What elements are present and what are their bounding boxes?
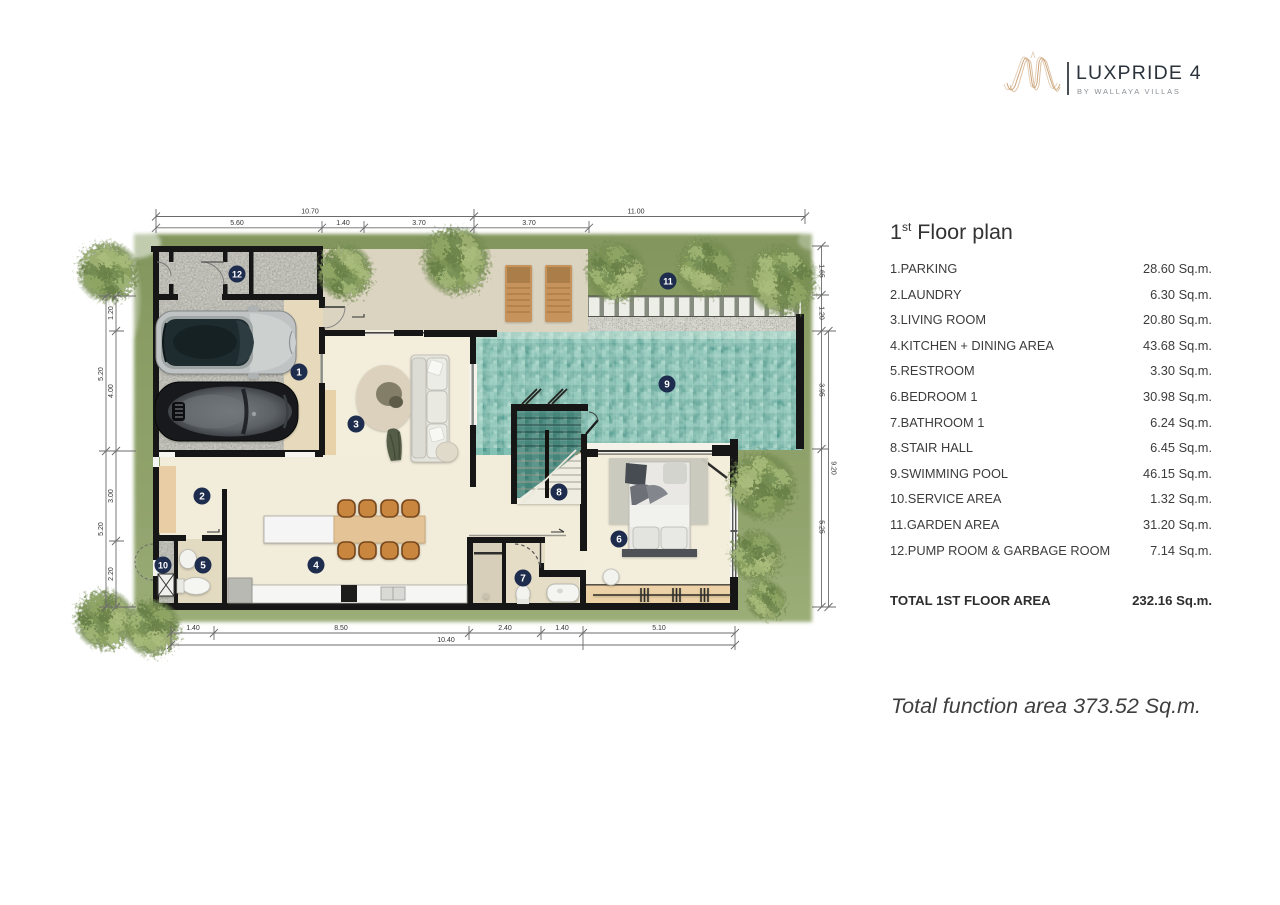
svg-text:2.20: 2.20 [108,567,115,581]
svg-text:3.95: 3.95 [818,383,825,397]
svg-text:1: 1 [296,368,302,379]
svg-text:11: 11 [663,277,673,287]
svg-text:2: 2 [199,492,205,503]
svg-text:9.20: 9.20 [830,461,837,475]
svg-text:10.70: 10.70 [301,209,319,216]
svg-text:11.00: 11.00 [628,209,645,216]
svg-text:1.20: 1.20 [108,306,115,320]
svg-text:10: 10 [158,561,168,571]
svg-text:5: 5 [200,561,206,572]
svg-text:3.70: 3.70 [522,220,536,227]
svg-text:1.20: 1.20 [818,306,825,320]
svg-text:1.40: 1.40 [555,625,569,632]
svg-text:8: 8 [556,488,562,499]
svg-text:10.40: 10.40 [437,637,455,644]
svg-text:7: 7 [520,574,526,585]
svg-text:4.00: 4.00 [108,384,115,398]
svg-text:5.20: 5.20 [98,367,105,381]
svg-text:6: 6 [616,535,622,546]
svg-text:5.60: 5.60 [230,220,244,227]
svg-text:2.40: 2.40 [498,625,512,632]
svg-text:9: 9 [664,380,670,391]
svg-text:1.40: 1.40 [186,625,200,632]
svg-text:4: 4 [313,561,319,572]
svg-text:12: 12 [232,270,242,280]
svg-text:1.65: 1.65 [818,264,825,278]
svg-text:3.70: 3.70 [412,220,426,227]
svg-text:3: 3 [353,420,359,431]
svg-text:3.00: 3.00 [108,489,115,503]
svg-text:5.25: 5.25 [818,520,825,534]
svg-text:5.20: 5.20 [98,522,105,536]
svg-text:8.50: 8.50 [334,625,348,632]
svg-text:5.10: 5.10 [652,625,666,632]
svg-text:1.40: 1.40 [336,220,350,227]
